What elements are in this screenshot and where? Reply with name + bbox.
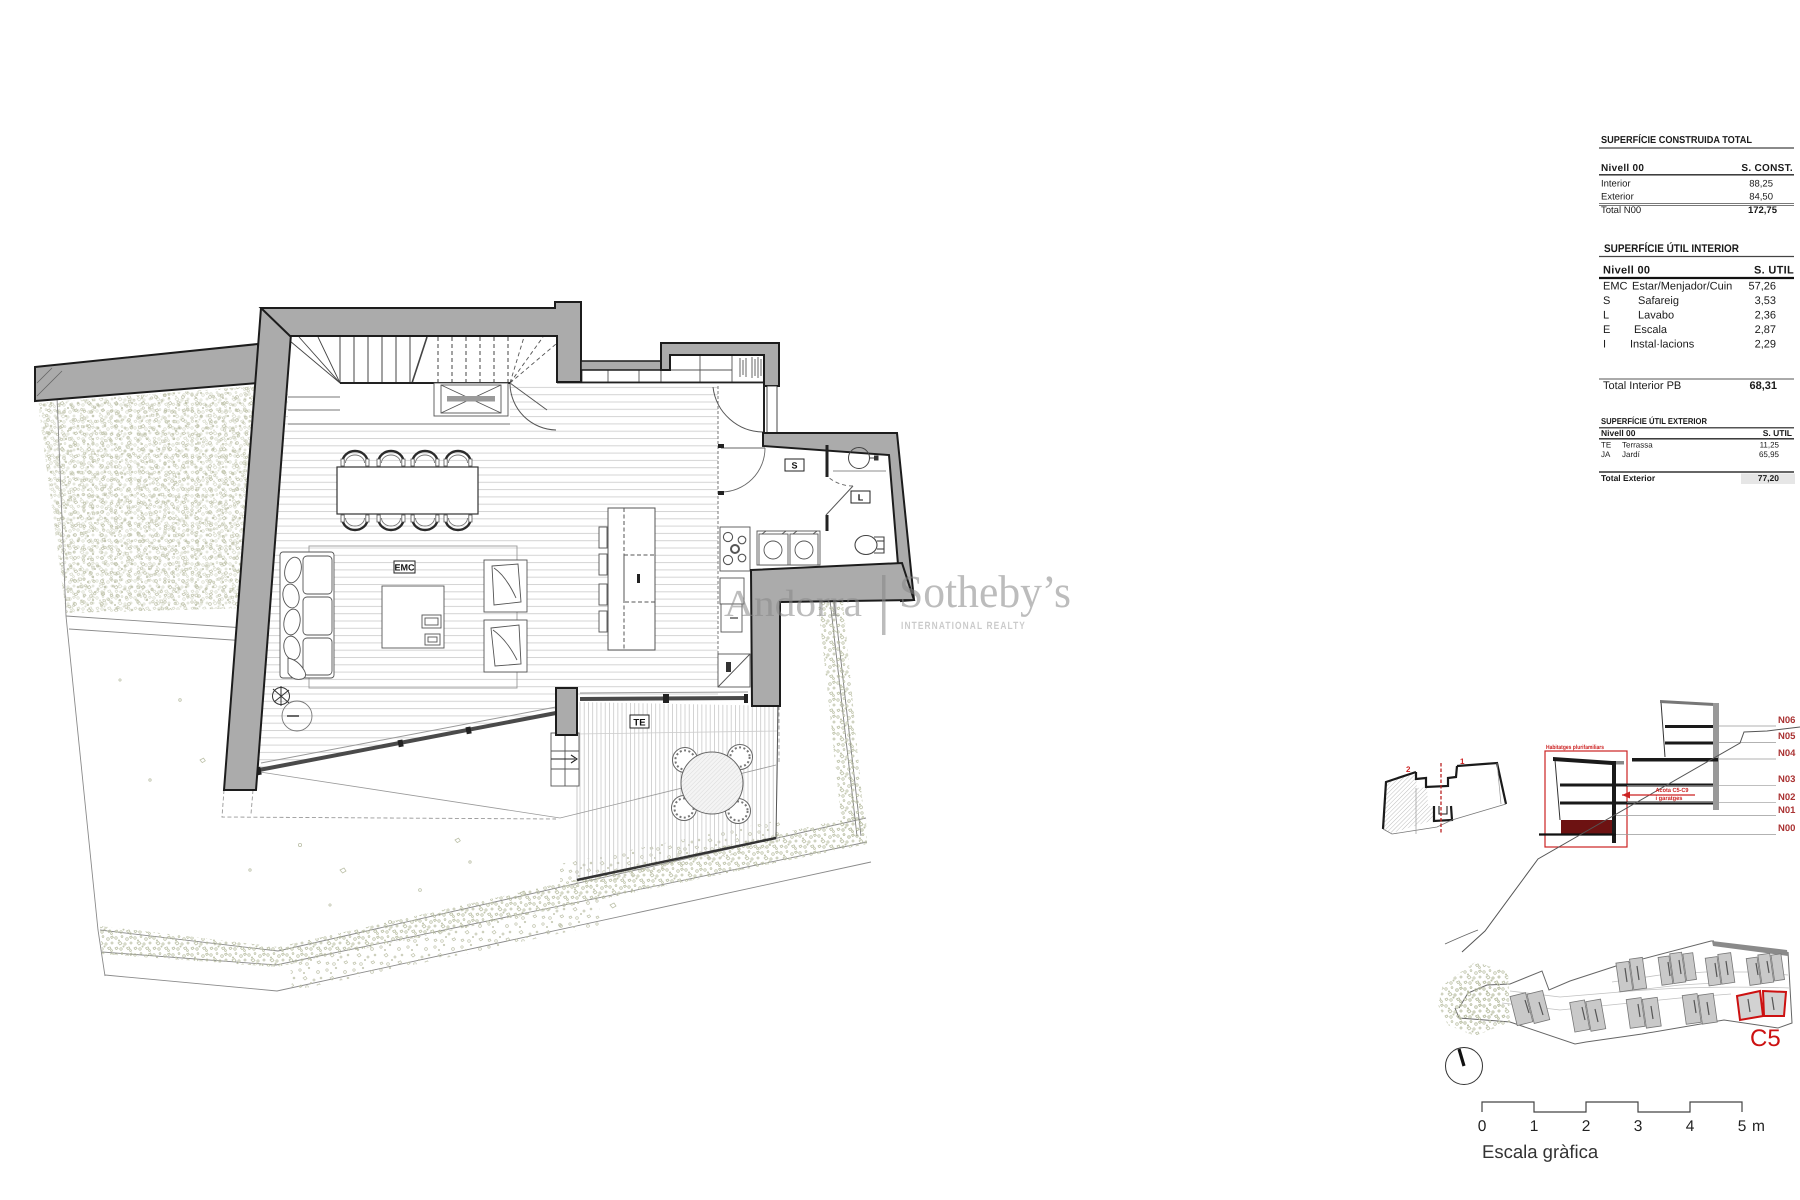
svg-text:Total Interior PB: Total Interior PB	[1603, 380, 1681, 392]
svg-text:Interior: Interior	[1601, 178, 1631, 189]
svg-text:68,31: 68,31	[1749, 380, 1777, 392]
svg-text:2: 2	[1582, 1118, 1591, 1135]
svg-text:Safareig: Safareig	[1638, 295, 1679, 307]
svg-text:SUPERFÍCIE ÚTIL EXTERIOR: SUPERFÍCIE ÚTIL EXTERIOR	[1601, 416, 1707, 426]
svg-text:S. UTIL: S. UTIL	[1763, 428, 1792, 438]
svg-text:i garatges: i garatges	[1656, 795, 1684, 802]
svg-text:Jardí: Jardí	[1622, 450, 1641, 459]
svg-text:88,25: 88,25	[1749, 178, 1773, 189]
svg-text:Total N00: Total N00	[1601, 205, 1641, 216]
svg-text:EMC: EMC	[1603, 281, 1628, 293]
svg-text:L: L	[858, 493, 864, 503]
svg-text:Lavabo: Lavabo	[1638, 310, 1674, 322]
svg-text:JA: JA	[1601, 450, 1611, 459]
svg-text:Escala: Escala	[1634, 324, 1668, 336]
svg-text:Total Exterior: Total Exterior	[1601, 473, 1656, 483]
svg-text:SUPERFÍCIE ÚTIL INTERIOR: SUPERFÍCIE ÚTIL INTERIOR	[1604, 242, 1739, 255]
svg-text:Estar/Menjador/Cuin: Estar/Menjador/Cuin	[1632, 281, 1732, 293]
svg-text:E: E	[1603, 324, 1610, 336]
svg-text:N00: N00	[1778, 823, 1795, 834]
svg-text:0: 0	[1478, 1118, 1487, 1135]
svg-text:Nivell 00: Nivell 00	[1601, 428, 1636, 438]
svg-text:5: 5	[1738, 1118, 1747, 1135]
svg-text:2: 2	[1406, 765, 1411, 774]
svg-text:65,95: 65,95	[1759, 450, 1780, 459]
svg-text:2,87: 2,87	[1755, 324, 1776, 336]
svg-text:Terrassa: Terrassa	[1622, 441, 1653, 450]
svg-text:172,75: 172,75	[1748, 205, 1778, 216]
svg-text:TE: TE	[1601, 441, 1611, 450]
svg-text:Nivell 00: Nivell 00	[1601, 163, 1644, 174]
svg-text:I: I	[1603, 339, 1606, 351]
svg-text:SUPERFÍCIE CONSTRUIDA TOTAL: SUPERFÍCIE CONSTRUIDA TOTAL	[1601, 134, 1752, 146]
svg-text:N03: N03	[1778, 774, 1795, 785]
svg-text:1: 1	[1460, 757, 1465, 766]
svg-text:N01: N01	[1778, 805, 1796, 816]
svg-text:S: S	[791, 461, 797, 471]
svg-text:C5: C5	[1750, 1025, 1781, 1052]
svg-text:2,29: 2,29	[1755, 339, 1776, 351]
svg-text:1: 1	[1530, 1118, 1539, 1135]
svg-text:Instal·lacions: Instal·lacions	[1630, 339, 1695, 351]
svg-text:S. CONST.: S. CONST.	[1741, 163, 1793, 174]
svg-text:N04: N04	[1778, 748, 1796, 759]
svg-text:Acota C5-C9: Acota C5-C9	[1656, 787, 1690, 794]
svg-text:2,36: 2,36	[1755, 310, 1776, 322]
svg-text:3: 3	[1634, 1118, 1643, 1135]
svg-text:57,26: 57,26	[1748, 281, 1776, 293]
svg-text:m: m	[1752, 1118, 1765, 1135]
svg-text:Escala gràfica: Escala gràfica	[1482, 1141, 1599, 1162]
svg-text:11,25: 11,25	[1760, 441, 1780, 450]
svg-text:84,50: 84,50	[1749, 191, 1773, 202]
svg-text:S: S	[1603, 295, 1610, 307]
svg-text:S. UTIL: S. UTIL	[1754, 265, 1794, 277]
svg-text:L: L	[1603, 310, 1609, 322]
svg-text:Habitatges plurifamiliars: Habitatges plurifamiliars	[1546, 744, 1605, 751]
svg-text:N06: N06	[1778, 715, 1795, 726]
svg-text:TE: TE	[633, 718, 645, 729]
svg-text:N05: N05	[1778, 731, 1796, 742]
svg-text:EMC: EMC	[395, 563, 416, 573]
svg-text:4: 4	[1686, 1118, 1695, 1135]
svg-text:Andorra: Andorra	[724, 583, 862, 625]
svg-text:Sotheby’s: Sotheby’s	[899, 566, 1071, 617]
svg-text:Exterior: Exterior	[1601, 191, 1634, 202]
svg-text:N02: N02	[1778, 792, 1795, 803]
svg-text:Nivell 00: Nivell 00	[1603, 265, 1650, 277]
svg-text:3,53: 3,53	[1755, 295, 1776, 307]
svg-text:77,20: 77,20	[1758, 473, 1780, 483]
svg-text:INTERNATIONAL REALTY: INTERNATIONAL REALTY	[901, 620, 1026, 632]
